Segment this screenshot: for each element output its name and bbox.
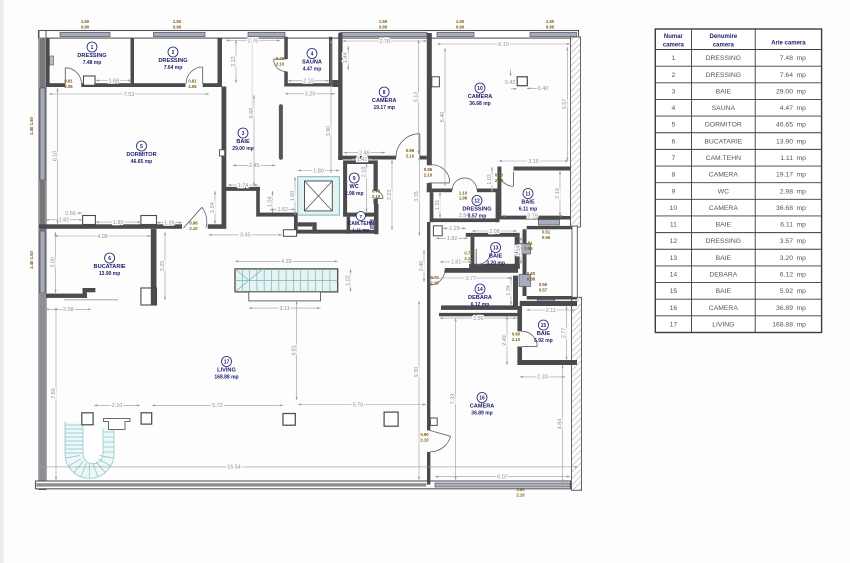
svg-text:14: 14 <box>477 287 483 293</box>
svg-text:6.11 mp: 6.11 mp <box>519 207 537 213</box>
svg-text:10: 10 <box>477 86 483 92</box>
svg-text:mp: mp <box>797 88 807 95</box>
svg-text:DORMITOR: DORMITOR <box>126 152 156 158</box>
svg-text:1.40 1.50: 1.40 1.50 <box>29 116 34 135</box>
svg-text:DORMITOR: DORMITOR <box>705 122 742 129</box>
svg-text:SAUNA: SAUNA <box>302 60 322 66</box>
svg-text:7.48 mp: 7.48 mp <box>83 60 102 66</box>
svg-text:13.90: 13.90 <box>776 138 793 145</box>
svg-text:13: 13 <box>670 255 678 262</box>
svg-text:1.52: 1.52 <box>277 207 288 213</box>
svg-text:2.79: 2.79 <box>527 214 538 220</box>
svg-text:1.42: 1.42 <box>357 157 368 163</box>
svg-text:19.17: 19.17 <box>776 172 793 179</box>
svg-text:0.90: 0.90 <box>546 24 555 29</box>
svg-text:2.77: 2.77 <box>561 328 567 339</box>
svg-text:2.06: 2.06 <box>64 84 73 89</box>
svg-text:4: 4 <box>311 51 314 57</box>
svg-text:BAIE: BAIE <box>537 331 551 337</box>
svg-text:6.12 mp: 6.12 mp <box>471 302 490 308</box>
svg-text:8: 8 <box>383 90 386 96</box>
svg-text:Denumire: Denumire <box>710 34 738 40</box>
svg-text:2.49: 2.49 <box>502 335 508 346</box>
svg-text:CAMERA: CAMERA <box>468 94 493 100</box>
svg-text:1.68: 1.68 <box>109 78 120 84</box>
svg-text:6.07: 6.07 <box>497 474 508 480</box>
svg-text:3.35: 3.35 <box>414 191 420 202</box>
svg-text:13.90 mp: 13.90 mp <box>99 271 120 277</box>
svg-text:3.45: 3.45 <box>240 233 251 239</box>
svg-text:15: 15 <box>541 323 547 329</box>
svg-text:168.88: 168.88 <box>772 321 793 328</box>
svg-text:mp: mp <box>797 255 807 262</box>
svg-text:CAMERA: CAMERA <box>709 205 739 212</box>
svg-text:2.78: 2.78 <box>379 39 390 45</box>
svg-text:SAUNA: SAUNA <box>712 105 736 112</box>
svg-text:0.90: 0.90 <box>456 24 465 29</box>
svg-text:1.11: 1.11 <box>780 155 793 162</box>
svg-text:36.68 mp: 36.68 mp <box>469 101 490 107</box>
svg-text:mp: mp <box>797 222 807 229</box>
svg-text:16: 16 <box>670 305 678 312</box>
svg-text:7.53: 7.53 <box>124 92 135 98</box>
svg-text:12: 12 <box>670 238 678 245</box>
svg-text:1.11 mp: 1.11 mp <box>352 227 369 232</box>
svg-text:DRESSING: DRESSING <box>706 238 742 245</box>
svg-text:DRESSING: DRESSING <box>706 55 742 62</box>
svg-text:3.20: 3.20 <box>780 255 793 262</box>
svg-text:9: 9 <box>672 188 676 195</box>
svg-text:3.57 mp: 3.57 mp <box>468 214 487 220</box>
svg-text:2.33: 2.33 <box>537 375 548 381</box>
svg-text:mp: mp <box>797 138 807 145</box>
svg-text:0.56: 0.56 <box>65 211 76 217</box>
svg-text:12: 12 <box>474 198 480 204</box>
svg-text:1.34: 1.34 <box>506 285 512 296</box>
svg-text:5.57: 5.57 <box>562 99 568 110</box>
svg-text:15: 15 <box>670 288 678 295</box>
svg-text:6: 6 <box>672 138 676 145</box>
svg-text:2.10: 2.10 <box>512 337 521 342</box>
svg-text:camera: camera <box>663 42 685 48</box>
svg-text:2.10: 2.10 <box>516 492 525 497</box>
svg-text:BAIE: BAIE <box>521 200 535 206</box>
svg-text:CAMERA: CAMERA <box>709 305 739 312</box>
svg-text:5.72: 5.72 <box>212 403 223 409</box>
svg-text:16: 16 <box>479 395 485 401</box>
svg-text:2.10: 2.10 <box>189 226 198 231</box>
svg-text:2.10: 2.10 <box>464 256 473 261</box>
svg-text:36.89 mp: 36.89 mp <box>471 411 492 417</box>
svg-text:DRESSING: DRESSING <box>77 53 106 59</box>
svg-text:3.77: 3.77 <box>466 276 477 282</box>
svg-text:3.90: 3.90 <box>326 126 332 137</box>
svg-text:10: 10 <box>670 205 678 212</box>
svg-text:BUCATARIE: BUCATARIE <box>94 264 126 270</box>
svg-text:17: 17 <box>224 359 230 365</box>
svg-text:0.57: 0.57 <box>539 287 548 292</box>
svg-text:1.90: 1.90 <box>113 220 124 226</box>
svg-text:2.10: 2.10 <box>112 403 123 409</box>
svg-text:1.40 1.50: 1.40 1.50 <box>29 250 34 269</box>
svg-text:camera: camera <box>713 42 735 48</box>
svg-text:4.81: 4.81 <box>291 345 297 356</box>
svg-text:2.98: 2.98 <box>780 188 793 195</box>
svg-text:6.10: 6.10 <box>52 151 58 162</box>
svg-text:LIVING: LIVING <box>217 368 236 374</box>
svg-text:2.06: 2.06 <box>188 84 197 89</box>
svg-text:DRESSING: DRESSING <box>158 58 187 64</box>
svg-text:1: 1 <box>91 45 94 51</box>
svg-text:2.18: 2.18 <box>361 167 367 178</box>
svg-text:1.02: 1.02 <box>345 275 351 286</box>
svg-text:mp: mp <box>797 72 807 79</box>
svg-text:2.10: 2.10 <box>424 172 433 177</box>
svg-text:2.10: 2.10 <box>430 280 439 285</box>
svg-text:2.76: 2.76 <box>248 38 259 44</box>
svg-text:3.15: 3.15 <box>528 159 539 165</box>
svg-text:3.25: 3.25 <box>160 261 166 272</box>
svg-text:0.40: 0.40 <box>538 86 549 92</box>
svg-text:2.46: 2.46 <box>359 150 370 156</box>
svg-text:17: 17 <box>670 321 678 328</box>
svg-text:BAIE: BAIE <box>716 88 732 95</box>
svg-text:DEBARA: DEBARA <box>468 295 492 301</box>
svg-text:36.89: 36.89 <box>776 305 793 312</box>
svg-text:3.23: 3.23 <box>387 190 393 201</box>
svg-text:2.08: 2.08 <box>63 307 74 313</box>
svg-text:mp: mp <box>797 172 807 179</box>
svg-text:2.19: 2.19 <box>303 79 314 85</box>
svg-text:3.57: 3.57 <box>780 238 793 245</box>
svg-text:29.00: 29.00 <box>776 88 793 95</box>
svg-text:2.11: 2.11 <box>546 308 556 314</box>
svg-text:CAMERA: CAMERA <box>709 172 739 179</box>
svg-text:BAIE: BAIE <box>716 288 732 295</box>
svg-text:1.29: 1.29 <box>449 226 460 232</box>
svg-text:3: 3 <box>242 131 245 137</box>
svg-text:2: 2 <box>172 50 175 56</box>
svg-text:2.10: 2.10 <box>420 437 429 442</box>
svg-text:1.82: 1.82 <box>447 236 458 242</box>
svg-text:CAM.TEHN: CAM.TEHN <box>706 155 742 162</box>
svg-text:mp: mp <box>797 238 807 245</box>
svg-text:BAIE: BAIE <box>716 255 732 262</box>
svg-text:7.64 mp: 7.64 mp <box>164 65 183 71</box>
svg-text:11: 11 <box>670 222 677 229</box>
svg-text:mp: mp <box>797 321 807 328</box>
svg-text:3.11: 3.11 <box>280 306 290 312</box>
svg-text:mp: mp <box>797 122 807 129</box>
svg-text:4.39: 4.39 <box>281 259 292 265</box>
svg-text:46.65: 46.65 <box>776 122 793 129</box>
svg-text:4.84: 4.84 <box>557 419 563 430</box>
svg-text:8: 8 <box>672 172 676 179</box>
svg-text:Numar: Numar <box>664 34 684 40</box>
svg-text:2: 2 <box>672 72 676 79</box>
svg-text:mp: mp <box>797 105 807 112</box>
svg-text:BAIE: BAIE <box>236 139 250 145</box>
svg-text:mp: mp <box>797 205 807 212</box>
svg-text:6.12: 6.12 <box>780 272 793 279</box>
svg-text:mp: mp <box>797 305 807 312</box>
svg-text:5.92 mp: 5.92 mp <box>534 338 553 344</box>
svg-text:1: 1 <box>672 55 676 62</box>
svg-text:7.64: 7.64 <box>780 72 793 79</box>
svg-text:19.17 mp: 19.17 mp <box>373 105 394 111</box>
svg-text:3: 3 <box>672 88 676 95</box>
svg-text:5: 5 <box>140 144 143 150</box>
svg-text:4.47 mp: 4.47 mp <box>303 67 322 73</box>
svg-text:2.12: 2.12 <box>231 56 237 67</box>
svg-text:16.54: 16.54 <box>227 465 241 471</box>
svg-text:4.08: 4.08 <box>97 234 108 240</box>
svg-text:2.10: 2.10 <box>276 61 285 66</box>
svg-text:5.13: 5.13 <box>413 92 419 103</box>
svg-text:1.31: 1.31 <box>435 200 441 211</box>
svg-text:11: 11 <box>525 191 531 197</box>
svg-text:2.98 mp: 2.98 mp <box>345 191 364 197</box>
svg-text:1.82: 1.82 <box>59 218 70 224</box>
svg-text:3.29: 3.29 <box>305 92 316 98</box>
svg-text:DEBARA: DEBARA <box>709 272 737 279</box>
svg-text:1.54: 1.54 <box>516 245 522 256</box>
svg-text:0.88: 0.88 <box>527 276 536 281</box>
svg-text:5.70: 5.70 <box>353 402 364 408</box>
svg-text:14: 14 <box>670 272 678 279</box>
svg-text:9.30: 9.30 <box>414 367 420 378</box>
svg-text:7: 7 <box>359 214 362 220</box>
svg-text:6.40: 6.40 <box>440 112 446 123</box>
svg-text:5: 5 <box>672 122 676 129</box>
svg-text:BAIE: BAIE <box>716 222 732 229</box>
svg-text:1.81: 1.81 <box>451 260 462 266</box>
svg-text:46.65 mp: 46.65 mp <box>131 159 152 165</box>
svg-text:4: 4 <box>672 105 676 112</box>
svg-text:CAMERA: CAMERA <box>372 98 397 104</box>
svg-text:0.56: 0.56 <box>524 246 533 251</box>
svg-text:0.42: 0.42 <box>505 80 516 86</box>
svg-text:6.68: 6.68 <box>249 108 255 119</box>
svg-text:3.56: 3.56 <box>473 316 484 322</box>
svg-text:1.74: 1.74 <box>238 183 249 189</box>
svg-text:29.00 mp: 29.00 mp <box>232 146 253 152</box>
svg-text:13: 13 <box>493 245 499 251</box>
svg-text:7.33: 7.33 <box>450 394 456 405</box>
svg-text:1.04: 1.04 <box>267 197 273 208</box>
svg-text:2.08: 2.08 <box>489 229 500 235</box>
svg-text:3.20 mp: 3.20 mp <box>486 261 505 267</box>
svg-text:0.90: 0.90 <box>173 24 182 29</box>
svg-text:1.54: 1.54 <box>210 202 216 213</box>
svg-text:6.11: 6.11 <box>780 222 793 229</box>
svg-text:3.00: 3.00 <box>50 257 56 268</box>
svg-text:7.48: 7.48 <box>780 55 793 62</box>
svg-text:2.19: 2.19 <box>555 188 561 199</box>
svg-text:1.60: 1.60 <box>290 191 296 202</box>
svg-text:0.90: 0.90 <box>81 24 90 29</box>
svg-text:6.10: 6.10 <box>498 42 509 48</box>
svg-text:5.92: 5.92 <box>780 288 793 295</box>
svg-text:Arie camera: Arie camera <box>771 40 806 46</box>
svg-text:mp: mp <box>797 188 807 195</box>
svg-text:2.10: 2.10 <box>495 178 504 183</box>
svg-text:DRESSING: DRESSING <box>462 207 491 213</box>
svg-text:CAM.TEHN: CAM.TEHN <box>348 221 375 227</box>
svg-text:2.40: 2.40 <box>419 261 425 272</box>
svg-text:0.56: 0.56 <box>542 235 551 240</box>
svg-text:7.69: 7.69 <box>51 388 57 399</box>
svg-text:mp: mp <box>797 272 807 279</box>
svg-text:36.68: 36.68 <box>776 205 793 212</box>
svg-text:mp: mp <box>797 155 807 162</box>
svg-text:LIVING: LIVING <box>712 321 734 328</box>
svg-text:7: 7 <box>672 155 676 162</box>
svg-text:6: 6 <box>108 256 111 262</box>
svg-text:1.98: 1.98 <box>459 196 468 201</box>
svg-text:1.44: 1.44 <box>343 53 349 64</box>
svg-text:4.47: 4.47 <box>780 105 793 112</box>
svg-text:mp: mp <box>797 288 807 295</box>
svg-text:2.10: 2.10 <box>372 194 381 199</box>
svg-text:mp: mp <box>797 55 807 62</box>
svg-text:BUCATARIE: BUCATARIE <box>704 138 742 145</box>
svg-text:168.88 mp: 168.88 mp <box>214 375 238 381</box>
svg-text:2.10: 2.10 <box>406 153 415 158</box>
svg-text:WC: WC <box>350 184 359 190</box>
svg-text:BAIE: BAIE <box>489 254 503 260</box>
svg-text:1.80: 1.80 <box>313 168 324 174</box>
svg-text:9: 9 <box>353 176 356 182</box>
svg-text:CAMERA: CAMERA <box>470 404 495 410</box>
svg-text:1.03: 1.03 <box>487 174 493 185</box>
svg-text:0.90: 0.90 <box>379 24 388 29</box>
svg-text:1.26: 1.26 <box>164 220 175 226</box>
svg-text:WC: WC <box>718 188 729 195</box>
svg-text:DRESSING: DRESSING <box>706 72 742 79</box>
